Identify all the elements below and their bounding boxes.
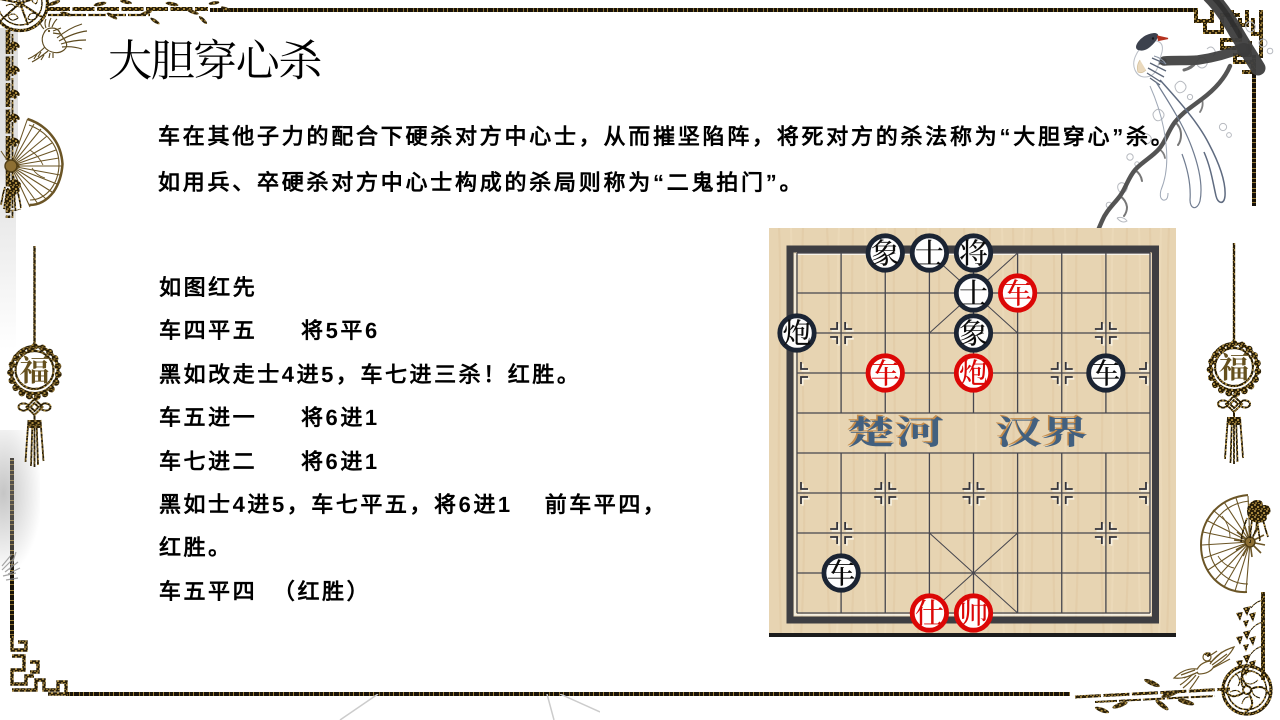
svg-text:车: 车 (827, 552, 856, 593)
svg-text:车: 车 (871, 352, 900, 393)
svg-text:帅: 帅 (959, 592, 988, 633)
svg-text:士: 士 (959, 272, 988, 313)
svg-text:楚河: 楚河 (847, 407, 944, 454)
svg-text:炮: 炮 (782, 312, 811, 353)
svg-text:象: 象 (959, 312, 988, 353)
svg-text:汉界: 汉界 (996, 407, 1088, 454)
svg-text:象: 象 (871, 232, 900, 273)
svg-text:仕: 仕 (915, 592, 944, 633)
svg-text:车: 车 (1003, 272, 1032, 313)
svg-text:炮: 炮 (959, 352, 988, 393)
svg-text:将: 将 (959, 232, 988, 273)
svg-text:车: 车 (1091, 352, 1120, 393)
svg-text:士: 士 (915, 232, 944, 273)
